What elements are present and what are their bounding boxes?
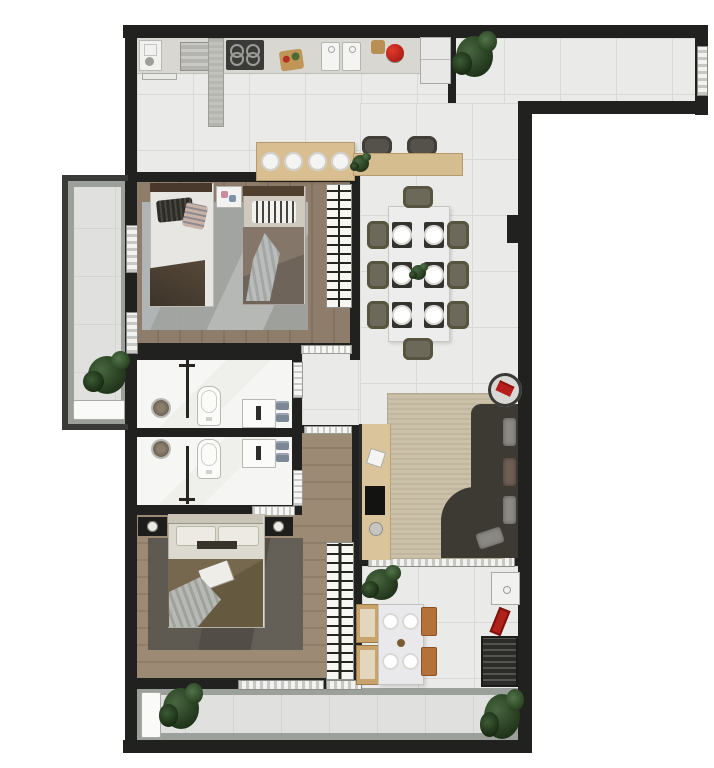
- faucet-icon: [256, 446, 261, 460]
- gourmet-counter-sink: [491, 572, 520, 605]
- gourmet-table: [378, 604, 424, 685]
- headboard: [243, 186, 304, 196]
- decor-round: [369, 522, 383, 536]
- stool-3: [308, 152, 327, 171]
- master-corridor-floor: [302, 433, 352, 515]
- master-nightstand-left: [138, 517, 167, 536]
- bath2-shower-head: [153, 441, 169, 457]
- dining-chair-r1: [447, 221, 469, 249]
- round-side-table: [488, 373, 522, 407]
- master-suite-door: [304, 426, 352, 434]
- bottom-balcony-plant-right: [484, 694, 520, 739]
- bedroom1-window-1: [126, 225, 138, 273]
- faucet-icon: [145, 57, 154, 66]
- fridge-divider: [421, 59, 450, 60]
- dining-centerpiece-plant: [411, 265, 426, 280]
- peninsula-counter: [208, 38, 224, 127]
- chair-cushion: [360, 650, 375, 679]
- tray-knob: [328, 46, 335, 53]
- bath2-partition-tick: [179, 498, 195, 501]
- bedroom1-wardrobe-rack: [326, 184, 352, 308]
- single-bed-right: [243, 186, 306, 305]
- bedroom1-door: [301, 345, 352, 354]
- dining-chair-bottom: [403, 338, 433, 360]
- dining-chair-l2: [367, 261, 389, 289]
- gourmet-chair-right-1: [421, 607, 437, 636]
- bed-runner: [197, 541, 237, 549]
- counter-basket: [371, 40, 385, 54]
- bathroom1-door: [293, 362, 303, 398]
- bath2-towel-2: [276, 453, 289, 462]
- cooktop: [226, 40, 264, 70]
- nightstand-items: [229, 195, 236, 202]
- lamp-icon: [273, 521, 284, 532]
- blanket-dark: [150, 260, 205, 306]
- bath1-shower-head: [153, 400, 169, 416]
- plate: [392, 225, 412, 245]
- side-balcony-plant: [88, 356, 126, 394]
- floor-plan: [0, 0, 714, 768]
- counter-tray-2: [342, 42, 361, 71]
- sink-drain: [503, 586, 511, 594]
- single-bed-left: [150, 183, 214, 307]
- food-green: [291, 52, 300, 61]
- master-nightstand-right: [264, 517, 293, 536]
- master-wardrobe-rack: [326, 542, 354, 680]
- faucet-icon: [256, 406, 261, 420]
- wing-bottom-wall: [525, 101, 708, 114]
- chair-cushion: [360, 609, 375, 637]
- gourmet-chair-right-2: [421, 647, 437, 676]
- side-balcony-wall-left: [62, 175, 68, 430]
- bath1-towel-2: [276, 413, 289, 422]
- plate: [402, 613, 419, 630]
- decor-white: [366, 448, 386, 468]
- bath1-partition-tick: [179, 364, 195, 367]
- bottom-wall: [123, 740, 532, 753]
- bathroom-divider-wall: [125, 428, 302, 437]
- plate: [402, 653, 419, 670]
- pillow-patterned: [252, 201, 296, 223]
- stool-2: [284, 152, 303, 171]
- kitchen-sink: [139, 40, 162, 71]
- bath2-vanity: [242, 439, 276, 468]
- dining-chair-r3: [447, 301, 469, 329]
- sofa-pillow: [503, 496, 516, 524]
- headboard: [168, 514, 263, 524]
- table-centerpiece: [397, 639, 405, 647]
- kitchen-towel-bar: [142, 73, 177, 80]
- bedroom1-nightstand: [216, 186, 242, 208]
- right-wall-main: [518, 101, 532, 753]
- counter-tray-1: [321, 42, 340, 71]
- dining-chair-r2: [447, 261, 469, 289]
- bath1-vanity: [242, 399, 276, 428]
- lamp-icon: [147, 521, 158, 532]
- side-balcony-bench: [73, 400, 125, 420]
- cutting-board: [279, 48, 305, 71]
- hallway-floor: [302, 353, 360, 425]
- fridge: [420, 37, 451, 84]
- red-kettle: [386, 44, 404, 62]
- master-balcony-window-1: [238, 680, 324, 690]
- stool-4: [331, 152, 350, 171]
- stool-1: [261, 152, 280, 171]
- side-balcony-wall-bottom: [62, 424, 128, 430]
- sink-basin: [144, 44, 157, 56]
- range-hood: [180, 42, 210, 71]
- bedroom1-window-2: [126, 312, 138, 354]
- dining-chair-top: [403, 186, 433, 208]
- bath1-shower-partition: [186, 360, 189, 418]
- tray-knob: [349, 46, 356, 53]
- top-wall: [123, 25, 708, 38]
- bathroom1-top-wall: [125, 353, 302, 360]
- barbecue-grill: [481, 636, 518, 687]
- burner-icon: [230, 52, 244, 66]
- master-double-bed: [168, 514, 265, 628]
- left-wall: [125, 25, 137, 753]
- entry-door: [697, 46, 708, 96]
- bath1-towel-1: [276, 401, 289, 410]
- plate: [424, 305, 444, 325]
- headboard: [150, 183, 212, 192]
- plate: [424, 225, 444, 245]
- tv: [365, 486, 385, 515]
- plate: [392, 305, 412, 325]
- right-wall-pillar: [507, 215, 532, 243]
- gourmet-plant: [365, 569, 398, 600]
- bath2-towel-1: [276, 441, 289, 450]
- burner-icon: [246, 52, 260, 66]
- red-book: [495, 380, 514, 397]
- plate: [382, 613, 399, 630]
- side-balcony-wall-top: [62, 175, 128, 181]
- dining-chair-l3: [367, 301, 389, 329]
- sofa-pillow: [503, 458, 516, 486]
- bottom-balcony-plant-left: [163, 688, 199, 729]
- sofa-pillow: [503, 418, 516, 446]
- entry-corner-plant: [456, 36, 493, 77]
- bath1-toilet: [197, 386, 221, 426]
- bath2-shower-partition: [186, 446, 189, 504]
- food-red: [282, 55, 290, 63]
- buffet-plant: [352, 155, 369, 172]
- plate: [382, 653, 399, 670]
- bath2-toilet: [197, 439, 221, 479]
- tv-console: [359, 424, 391, 560]
- dining-chair-l1: [367, 221, 389, 249]
- bathroom2-door: [293, 470, 303, 506]
- pillow-accent: [182, 202, 209, 230]
- nightstand-items: [221, 191, 228, 198]
